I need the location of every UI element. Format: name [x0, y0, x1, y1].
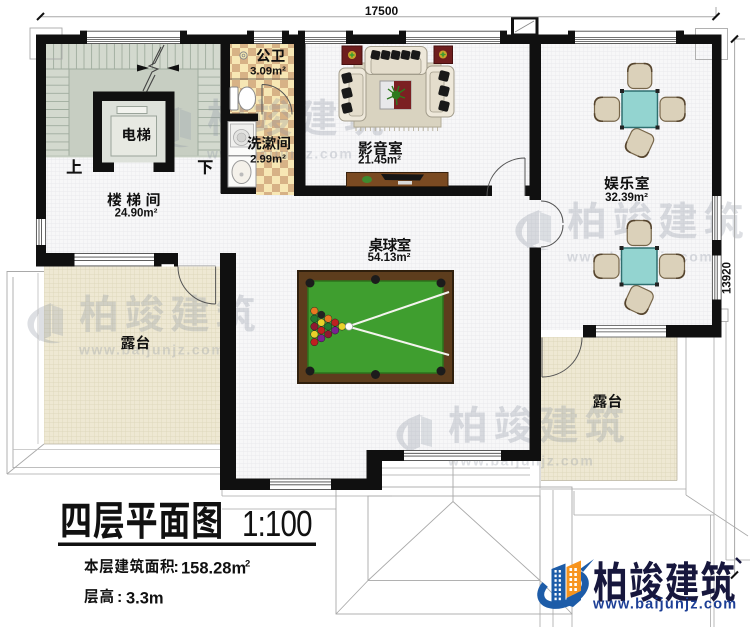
svg-text:13920: 13920 — [722, 262, 734, 294]
svg-text::: : — [117, 589, 122, 606]
svg-text:2.99m²: 2.99m² — [250, 154, 286, 166]
svg-text:1:100: 1:100 — [242, 503, 313, 543]
svg-text:158.28m: 158.28m — [181, 560, 246, 578]
svg-text:24.90m²: 24.90m² — [115, 208, 158, 220]
svg-text::: : — [174, 559, 179, 576]
svg-text:www.baijunjz.com: www.baijunjz.com — [592, 597, 737, 613]
svg-text:3.3m: 3.3m — [126, 590, 164, 608]
svg-text:2: 2 — [245, 559, 250, 570]
svg-text:32.39m²: 32.39m² — [605, 192, 648, 204]
svg-text:21.45m²: 21.45m² — [358, 155, 401, 167]
svg-text:54.13m²: 54.13m² — [368, 252, 411, 264]
svg-text:www.baijunjz.com: www.baijunjz.com — [78, 342, 225, 358]
svg-text:3.09m²: 3.09m² — [250, 66, 286, 78]
svg-text:17500: 17500 — [365, 4, 399, 18]
